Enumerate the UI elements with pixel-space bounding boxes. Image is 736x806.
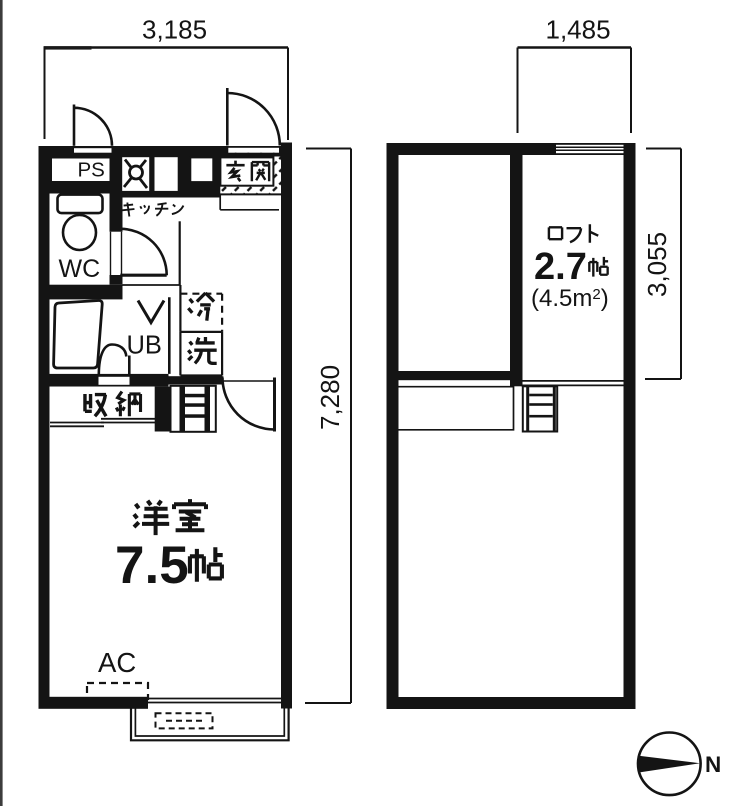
svg-text:3,055: 3,055 xyxy=(642,232,672,297)
svg-text:WC: WC xyxy=(59,255,101,283)
svg-text:AC: AC xyxy=(98,647,136,678)
svg-text:3,185: 3,185 xyxy=(142,15,207,45)
svg-text:7,280: 7,280 xyxy=(315,365,345,430)
svg-text:N: N xyxy=(705,752,721,777)
svg-text:7.5: 7.5 xyxy=(115,536,189,595)
svg-text:1,485: 1,485 xyxy=(546,15,611,45)
svg-text:UB: UB xyxy=(127,332,162,360)
svg-text:PS: PS xyxy=(78,159,105,182)
svg-text:2.7: 2.7 xyxy=(534,246,587,288)
